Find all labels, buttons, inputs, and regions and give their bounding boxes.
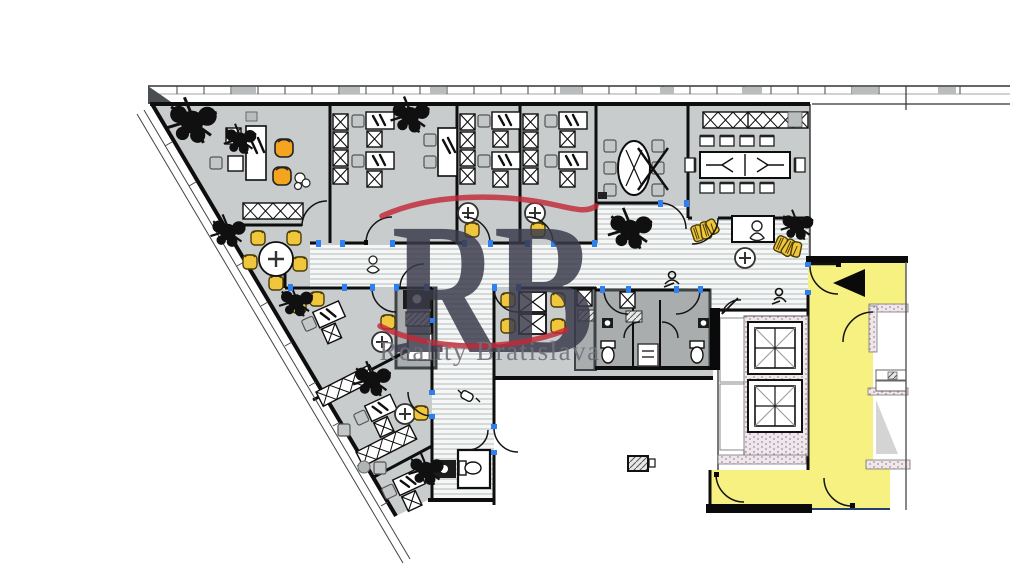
cabinet <box>620 292 635 308</box>
sideboard <box>243 203 303 219</box>
neighbor-kitchenette <box>876 370 906 391</box>
hatch-unit <box>626 311 642 322</box>
elevator-1 <box>748 322 802 374</box>
phone-symbol <box>598 192 607 199</box>
toilet <box>690 341 704 363</box>
side-table <box>228 156 243 171</box>
shaft-wall-hatch <box>718 455 806 464</box>
logo-subtitle: Reality Bratislava <box>379 336 600 366</box>
gray-chair <box>424 156 436 168</box>
riser-room <box>720 318 744 382</box>
meeting-room-small-top <box>598 140 668 199</box>
riser-room <box>720 384 744 450</box>
orange-chair <box>273 167 291 185</box>
watermark: RB Reality Bratislava <box>379 184 600 393</box>
toilet <box>459 461 481 475</box>
elevator-core <box>718 298 808 470</box>
elevator-2 <box>748 380 802 432</box>
floor-plan: RB Reality Bratislava <box>0 0 1011 570</box>
shadow-wedge <box>876 400 898 454</box>
column-symbol <box>735 248 755 268</box>
wall-unit <box>788 112 802 127</box>
toilet <box>601 341 615 363</box>
facade-corner-wedge <box>148 86 174 104</box>
column-symbol <box>395 404 415 424</box>
bin <box>358 461 370 473</box>
orange-chair <box>275 139 293 157</box>
utility-room <box>494 378 713 506</box>
wall-unit <box>246 112 257 121</box>
party-wall-hatch <box>869 306 877 352</box>
bottom-outer-wall <box>706 504 812 513</box>
gray-chair <box>210 157 222 169</box>
facade-gray-panels <box>232 87 956 94</box>
floor-plan-page: RB Reality Bratislava <box>0 0 1011 570</box>
party-wall-hatch <box>866 460 910 469</box>
gray-chair <box>424 134 436 146</box>
yellow-top-wall <box>806 256 908 263</box>
duct-shaft <box>638 344 658 366</box>
